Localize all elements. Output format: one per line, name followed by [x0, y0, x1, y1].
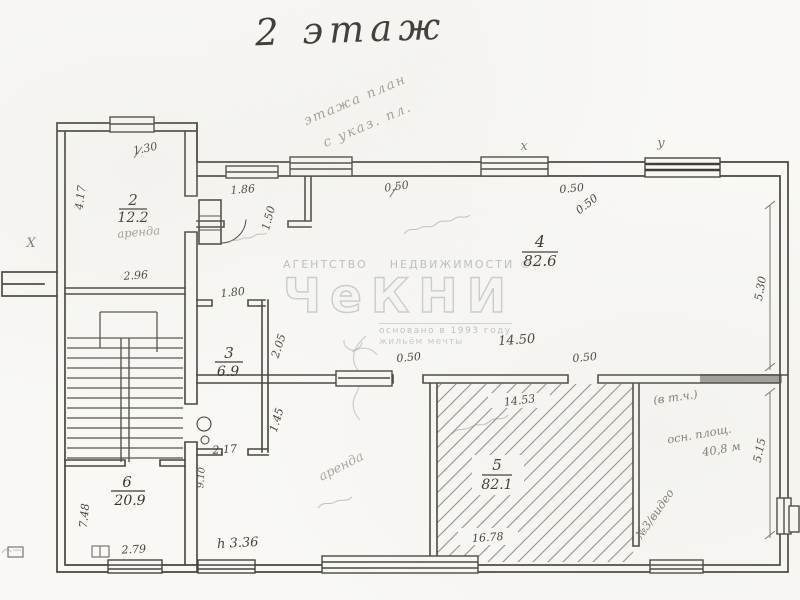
dim-right-upper: 5.30: [752, 275, 769, 301]
room-4-area: 82.6: [523, 252, 557, 270]
illegible-scribbles: [2, 215, 508, 553]
dim-room3-bottom: 2.17: [211, 442, 237, 457]
room-6-label: 6 20.9: [111, 473, 146, 509]
dim-room3-right-upper: 2.05: [268, 332, 288, 360]
room-3-number: 3: [224, 344, 234, 362]
room-3-label: 3 6.9: [215, 344, 243, 380]
staircase: [67, 312, 183, 462]
room-5-hatch: [437, 384, 633, 562]
dim-lower-left-side: 9.10: [195, 467, 208, 489]
dim-partition-right: 1.50: [259, 205, 278, 232]
room-6-number: 6: [122, 473, 132, 491]
dim-ceiling-height: h 3.36: [217, 535, 259, 552]
room-6-area: 20.9: [113, 493, 145, 509]
note-right-3: 40,8 м: [700, 439, 742, 460]
room-5-area: 82.1: [481, 477, 512, 493]
room-4-label: 4 82.6: [522, 232, 558, 270]
dim-lower-bottom: 16.78: [472, 530, 504, 545]
mark-top-y: у: [656, 136, 665, 151]
dim-room2-left: 4.17: [72, 185, 88, 212]
dim-partition-top: 1.86: [230, 182, 255, 197]
note-right-1: (в т.ч.): [652, 387, 698, 407]
mark-top-x: х: [520, 139, 528, 154]
mark-left-x: Х: [25, 236, 36, 251]
dim-right-lower: 5.15: [751, 437, 769, 464]
dim-room3-top: 1.80: [220, 285, 246, 300]
room-2-label: 2 12.2 аренда: [117, 191, 161, 241]
room-5-number: 5: [492, 456, 502, 474]
dim-door-mid-left: 0.50: [396, 350, 422, 365]
dim-door-mid-right: 0.50: [572, 350, 598, 365]
room-4-number: 4: [534, 232, 545, 251]
floor-plan-scan: 2 этаж АГЕНТСТВО НЕДВИЖИМОСТИ ® ЧеКНИ ос…: [0, 0, 800, 600]
dim-mid-wall: 14.50: [498, 332, 536, 350]
dim-top-wall-right-a: 0.50: [559, 181, 585, 196]
dim-top-wall-right-b: 0.50: [573, 192, 600, 217]
room-3-area: 6.9: [217, 364, 239, 380]
dim-room2-bottom: 2.96: [122, 268, 148, 283]
dim-room3-right-lower: 1.45: [267, 406, 287, 433]
floor-plan-canvas: 2 12.2 аренда 3 6.9 4 82.6 5 82.1 6 20.9…: [0, 0, 800, 600]
room-2-note: аренда: [117, 223, 161, 241]
corner-stamps: [8, 546, 109, 557]
room-2-number: 2: [127, 191, 138, 209]
wall-dark-fill: [700, 374, 782, 383]
dim-top-wall-left: 0.50: [383, 178, 409, 194]
dim-room2-top: 1.30: [132, 140, 159, 158]
dim-room6-left: 7.48: [77, 503, 92, 529]
note-lower-left: аренда: [316, 449, 366, 484]
dim-room6-bottom: 2.79: [120, 542, 146, 556]
